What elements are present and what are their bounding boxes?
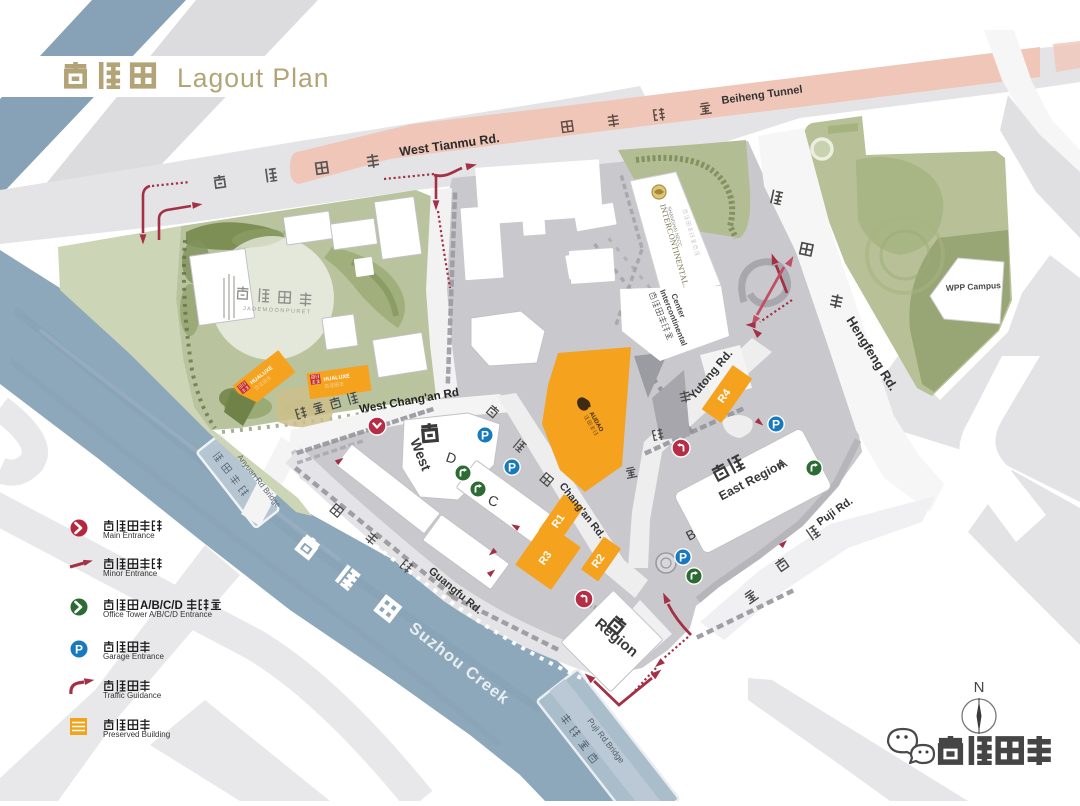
- svg-text:P: P: [679, 550, 687, 564]
- svg-text:P: P: [75, 643, 83, 657]
- svg-text:N: N: [974, 679, 985, 696]
- svg-text:Minor Entrance: Minor Entrance: [103, 569, 158, 578]
- svg-text:P: P: [772, 417, 780, 431]
- svg-text:P: P: [508, 460, 516, 474]
- svg-text:Garage Entrance: Garage Entrance: [103, 652, 164, 661]
- svg-text:Lagout Plan: Lagout Plan: [177, 63, 329, 93]
- svg-text:P: P: [481, 428, 489, 442]
- svg-text:Main Entrance: Main Entrance: [103, 531, 155, 540]
- svg-text:Preserved Building: Preserved Building: [103, 730, 170, 739]
- svg-text:Traffic Guidance: Traffic Guidance: [103, 691, 162, 700]
- svg-text:Office Tower A/B/C/D Entrance: Office Tower A/B/C/D Entrance: [103, 610, 213, 619]
